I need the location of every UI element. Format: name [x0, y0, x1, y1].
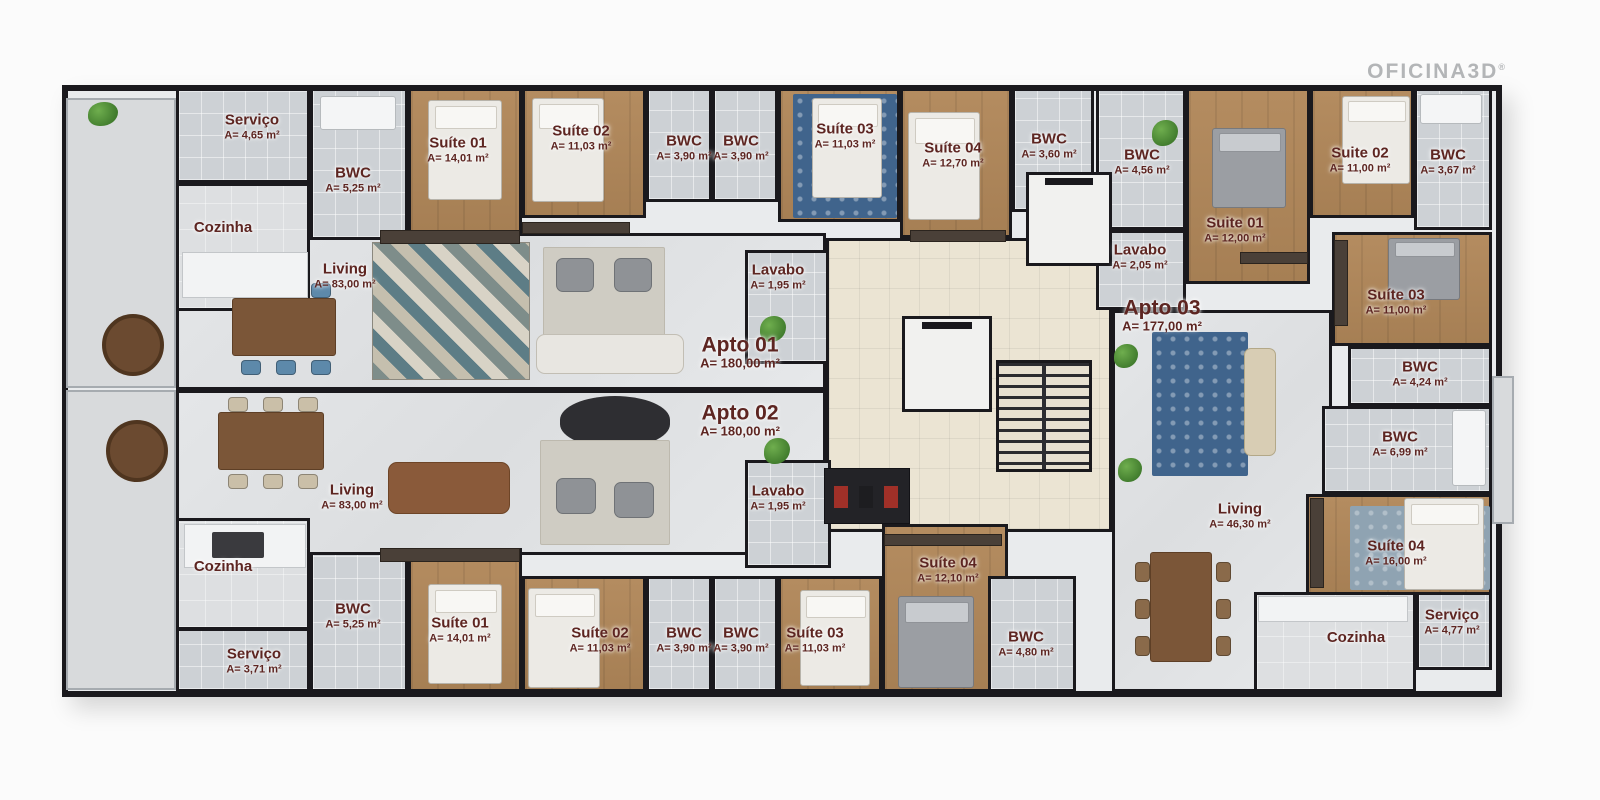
- label-bwc-suite04-apto01: BWCA= 3,60 m²: [1021, 132, 1076, 161]
- room-name: Suíte 03: [815, 122, 876, 139]
- room-area: A= 6,99 m²: [1372, 446, 1427, 458]
- dining-chair: [1135, 562, 1150, 582]
- dining-chair: [311, 360, 331, 375]
- room-name: Serviço: [226, 647, 281, 664]
- room-name: Cozinha: [194, 220, 252, 237]
- armchair: [556, 478, 596, 514]
- label-suite02-apto02: Suíte 02A= 11,03 m²: [570, 626, 631, 655]
- room-area: A= 5,25 m²: [325, 618, 380, 630]
- room-balcony-right: [1492, 376, 1514, 524]
- armchair: [614, 482, 654, 518]
- room-name: BWC: [325, 166, 380, 183]
- sofa: [536, 334, 684, 374]
- room-area: A= 12,00 m²: [1204, 232, 1265, 244]
- room-area: A= 12,10 m²: [917, 572, 978, 584]
- floor-plan-render: OFICINA3D® LivingA= 83,00 m²LivingA= 83,…: [0, 0, 1600, 800]
- registered-mark-icon: ®: [1498, 62, 1505, 72]
- label-servico-apto01: ServiçoA= 4,65 m²: [224, 113, 279, 142]
- room-name: Suíte 03: [785, 626, 846, 643]
- room-name: Lavabo: [1112, 243, 1167, 260]
- dining-chair: [263, 474, 283, 489]
- room-area: A= 83,00 m²: [321, 499, 382, 511]
- room-area: A= 46,30 m²: [1209, 518, 1270, 530]
- room-area: A= 14,01 m²: [429, 632, 490, 644]
- label-living-apto03: LivingA= 46,30 m²: [1209, 502, 1270, 531]
- room-name: Cozinha: [194, 559, 252, 576]
- room-name: Suíte 02: [570, 626, 631, 643]
- dining-chair: [1216, 562, 1231, 582]
- room-name: Lavabo: [750, 484, 805, 501]
- label-living-apto01: LivingA= 83,00 m²: [314, 262, 375, 291]
- label-bwc-suite04-apto02: BWCA= 4,80 m²: [998, 630, 1053, 659]
- room-name: BWC: [1021, 132, 1076, 149]
- label-suite02-apto03: Suite 02A= 11,00 m²: [1330, 146, 1391, 175]
- room-area: A= 4,65 m²: [224, 129, 279, 141]
- label-suite01-apto02: Suíte 01A= 14,01 m²: [429, 616, 490, 645]
- dining-chair: [298, 397, 318, 412]
- room-area: A= 4,77 m²: [1424, 624, 1479, 636]
- room-name: BWC: [656, 134, 711, 151]
- dining-chair: [1216, 599, 1231, 619]
- room-area: A= 4,80 m²: [998, 646, 1053, 658]
- bed: [1212, 128, 1286, 208]
- room-name: Suíte 04: [1365, 539, 1426, 556]
- dining-set: [232, 298, 336, 356]
- room-lavabo-apto02: [745, 460, 831, 568]
- room-name: Serviço: [224, 113, 279, 130]
- room-area: A= 3,90 m²: [713, 642, 768, 654]
- room-name: BWC: [656, 626, 711, 643]
- room-area: A= 11,03 m²: [815, 138, 876, 150]
- sofa: [388, 462, 510, 514]
- room-area: A= 3,67 m²: [1420, 164, 1475, 176]
- patterned-rug: [1152, 332, 1248, 476]
- label-lavabo-apto01: LavaboA= 1,95 m²: [750, 263, 805, 292]
- label-bwc-a-apto01: BWCA= 3,90 m²: [656, 134, 711, 163]
- dining-chair: [298, 474, 318, 489]
- dining-chair: [1135, 636, 1150, 656]
- room-name: Suíte 03: [1366, 288, 1427, 305]
- label-bwc-456-apto03: BWCA= 4,56 m²: [1114, 148, 1169, 177]
- sofa: [1244, 348, 1276, 456]
- label-lavabo-apto03: LavaboA= 2,05 m²: [1112, 243, 1167, 272]
- dining-set: [218, 412, 324, 470]
- label-suite03-apto03: Suíte 03A= 11,00 m²: [1366, 288, 1427, 317]
- label-cozinha-apto02: Cozinha: [194, 559, 252, 576]
- apartment-area: A= 180,00 m²: [700, 356, 780, 370]
- room-area: A= 3,71 m²: [226, 663, 281, 675]
- room-area: A= 11,03 m²: [570, 642, 631, 654]
- kitchen-island: [182, 252, 308, 298]
- wardrobe: [1310, 498, 1324, 588]
- room-area: A= 2,05 m²: [1112, 259, 1167, 271]
- apartment-name: Apto 01: [700, 333, 780, 356]
- room-name: BWC: [1114, 148, 1169, 165]
- armchair: [614, 258, 652, 292]
- room-area: A= 83,00 m²: [314, 278, 375, 290]
- room-area: A= 5,25 m²: [325, 182, 380, 194]
- label-bwc-424-apto03: BWCA= 4,24 m²: [1392, 360, 1447, 389]
- room-name: BWC: [713, 134, 768, 151]
- label-bwc-699-apto03: BWCA= 6,99 m²: [1372, 430, 1427, 459]
- room-area: A= 4,24 m²: [1392, 376, 1447, 388]
- room-name: Living: [314, 262, 375, 279]
- room-area: A= 11,03 m²: [785, 642, 846, 654]
- room-name: Suíte 04: [922, 141, 983, 158]
- bathtub: [1420, 94, 1482, 124]
- label-apto-02: Apto 02A= 180,00 m²: [700, 401, 780, 438]
- room-name: Suíte 01: [427, 136, 488, 153]
- dining-chair: [1135, 599, 1150, 619]
- room-name: Suite 02: [1330, 146, 1391, 163]
- room-area: A= 3,90 m²: [656, 150, 711, 162]
- room-name: Serviço: [1424, 608, 1479, 625]
- elevator: [902, 316, 992, 412]
- wardrobe: [910, 230, 1006, 242]
- label-suite04-apto02: Suíte 04A= 12,10 m²: [917, 556, 978, 585]
- room-area: A= 11,03 m²: [551, 140, 612, 152]
- room-name: Living: [1209, 502, 1270, 519]
- label-suite01-apto01: Suíte 01A= 14,01 m²: [427, 136, 488, 165]
- room-name: Suíte 04: [917, 556, 978, 573]
- apartment-area: A= 177,00 m²: [1122, 319, 1202, 333]
- label-bwc-suite02-apto03: BWCA= 3,67 m²: [1420, 148, 1475, 177]
- oficina3d-logo: OFICINA3D®: [1367, 60, 1505, 84]
- shower: [1452, 410, 1486, 486]
- label-servico-apto03: ServiçoA= 4,77 m²: [1424, 608, 1479, 637]
- room-area: A= 12,70 m²: [922, 157, 983, 169]
- label-suite02-apto01: Suíte 02A= 11,03 m²: [551, 124, 612, 153]
- label-bwc-suite01-apto01: BWCA= 5,25 m²: [325, 166, 380, 195]
- room-name: Suíte 02: [551, 124, 612, 141]
- room-name: Lavabo: [750, 263, 805, 280]
- room-name: Living: [321, 483, 382, 500]
- label-suite04-apto03: Suíte 04A= 16,00 m²: [1365, 539, 1426, 568]
- room-name: BWC: [1420, 148, 1475, 165]
- sideboard: [1240, 252, 1308, 264]
- room-area: A= 3,60 m²: [1021, 148, 1076, 160]
- label-bwc-suite01-apto02: BWCA= 5,25 m²: [325, 602, 380, 631]
- room-area: A= 1,95 m²: [750, 500, 805, 512]
- round-table: [106, 420, 168, 482]
- label-suite03-apto02: Suíte 03A= 11,03 m²: [785, 626, 846, 655]
- room-area: A= 4,56 m²: [1114, 164, 1169, 176]
- room-name: Suite 01: [1204, 216, 1265, 233]
- room-area: A= 1,95 m²: [750, 279, 805, 291]
- label-lavabo-apto02: LavaboA= 1,95 m²: [750, 484, 805, 513]
- bed: [898, 596, 974, 688]
- cooktop: [212, 532, 264, 558]
- dining-chair: [228, 397, 248, 412]
- label-suite01-apto03: Suite 01A= 12,00 m²: [1204, 216, 1265, 245]
- wardrobe: [380, 548, 520, 562]
- room-name: BWC: [325, 602, 380, 619]
- wardrobe: [1334, 240, 1348, 326]
- wardrobe: [884, 534, 1002, 546]
- room-name: Cozinha: [1327, 630, 1385, 647]
- label-bwc-a-apto02: BWCA= 3,90 m²: [656, 626, 711, 655]
- label-bwc-b-apto02: BWCA= 3,90 m²: [713, 626, 768, 655]
- elevator: [1026, 172, 1112, 266]
- room-name: BWC: [713, 626, 768, 643]
- label-suite03-apto01: Suíte 03A= 11,03 m²: [815, 122, 876, 151]
- room-name: BWC: [1372, 430, 1427, 447]
- room-area: A= 16,00 m²: [1365, 555, 1426, 567]
- room-area: A= 14,01 m²: [427, 152, 488, 164]
- wardrobe: [380, 230, 520, 244]
- dining-chair: [241, 360, 261, 375]
- logo-text: OFICINA3D: [1367, 60, 1498, 83]
- apartment-name: Apto 03: [1122, 296, 1202, 319]
- room-area: A= 3,90 m²: [713, 150, 768, 162]
- label-cozinha-apto01: Cozinha: [194, 220, 252, 237]
- dining-set: [1150, 552, 1212, 662]
- dining-chair: [276, 360, 296, 375]
- label-suite04-apto01: Suíte 04A= 12,70 m²: [922, 141, 983, 170]
- label-bwc-b-apto01: BWCA= 3,90 m²: [713, 134, 768, 163]
- utility-lockers: [824, 468, 910, 524]
- room-area: A= 3,90 m²: [656, 642, 711, 654]
- room-area: A= 11,00 m²: [1330, 162, 1391, 174]
- room-area: A= 11,00 m²: [1366, 304, 1427, 316]
- label-cozinha-apto03: Cozinha: [1327, 630, 1385, 647]
- round-table: [102, 314, 164, 376]
- room-name: BWC: [998, 630, 1053, 647]
- label-apto-01: Apto 01A= 180,00 m²: [700, 333, 780, 370]
- bathtub: [320, 96, 396, 130]
- apartment-name: Apto 02: [700, 401, 780, 424]
- dining-chair: [1216, 636, 1231, 656]
- kitchen-counter: [1258, 596, 1408, 622]
- room-name: Suíte 01: [429, 616, 490, 633]
- label-servico-apto02: ServiçoA= 3,71 m²: [226, 647, 281, 676]
- apartment-area: A= 180,00 m²: [700, 424, 780, 438]
- label-living-apto02: LivingA= 83,00 m²: [321, 483, 382, 512]
- room-name: BWC: [1392, 360, 1447, 377]
- stairs: [996, 360, 1092, 472]
- dining-chair: [263, 397, 283, 412]
- label-apto-03: Apto 03A= 177,00 m²: [1122, 296, 1202, 333]
- dining-chair: [228, 474, 248, 489]
- chevron-rug: [372, 242, 530, 380]
- armchair: [556, 258, 594, 292]
- wardrobe: [522, 222, 630, 234]
